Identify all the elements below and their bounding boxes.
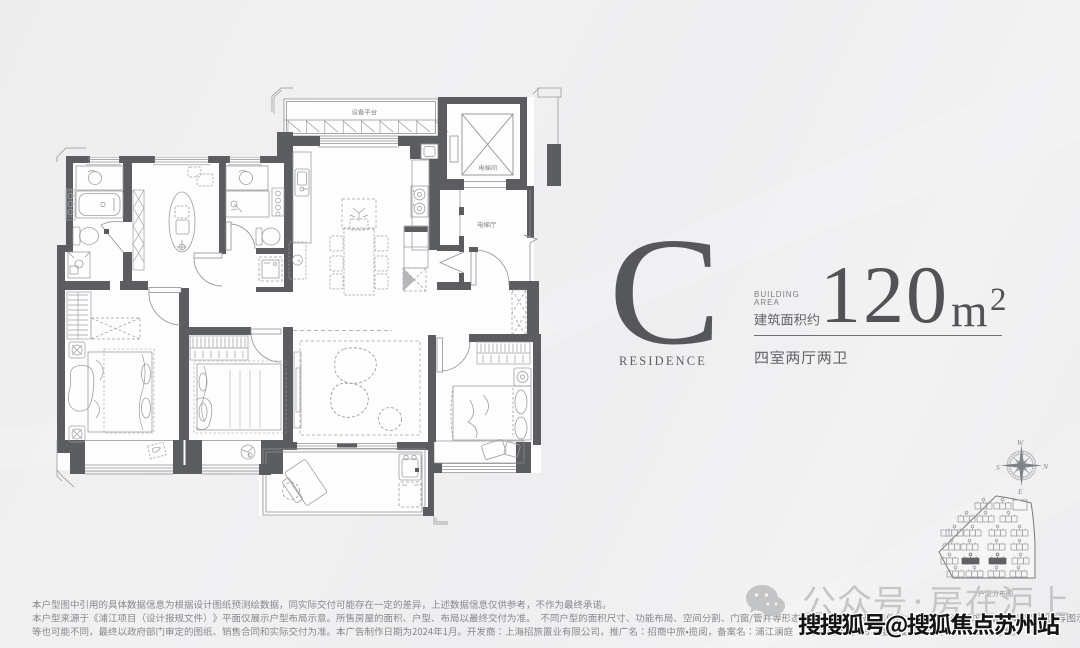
svg-text:E: E xyxy=(1017,487,1023,496)
svg-text:N: N xyxy=(1042,462,1049,471)
svg-text:m: m xyxy=(951,285,988,337)
svg-text:S: S xyxy=(996,463,1000,472)
svg-text:2: 2 xyxy=(990,282,1007,318)
svg-text:120: 120 xyxy=(820,249,949,340)
svg-text:RESIDENCE: RESIDENCE xyxy=(619,354,707,368)
svg-text:C: C xyxy=(609,207,722,377)
svg-text:W: W xyxy=(1017,438,1024,447)
svg-text:AREA: AREA xyxy=(754,298,780,307)
